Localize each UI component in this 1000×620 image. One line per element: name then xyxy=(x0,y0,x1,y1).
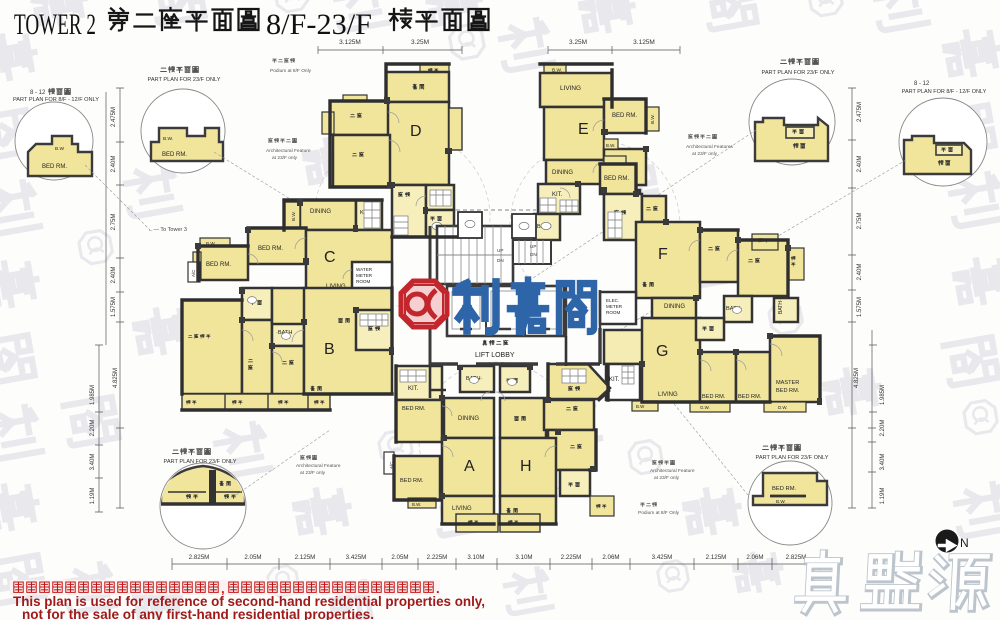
svg-text:1.19M: 1.19M xyxy=(90,488,96,505)
svg-text:ROOM: ROOM xyxy=(606,310,620,315)
svg-text:PART PLAN FOR 23/F ONLY: PART PLAN FOR 23/F ONLY xyxy=(164,459,237,465)
svg-text:at 23/F only: at 23/F only xyxy=(654,475,680,481)
svg-text:ROOM: ROOM xyxy=(356,279,370,284)
svg-text:1.985M: 1.985M xyxy=(880,385,886,405)
svg-text:8 - 12: 8 - 12 xyxy=(914,81,930,87)
svg-text:METER: METER xyxy=(356,273,373,278)
svg-text:B.W.: B.W. xyxy=(163,136,173,142)
svg-text:1.575M: 1.575M xyxy=(111,297,117,317)
svg-text:3.25M: 3.25M xyxy=(569,39,587,46)
svg-text:A: A xyxy=(464,458,475,475)
svg-text:B.W.: B.W. xyxy=(291,211,296,221)
svg-text:2.225M: 2.225M xyxy=(561,554,582,561)
svg-text:Podium at 8/F Only: Podium at 8/F Only xyxy=(270,68,312,74)
svg-text:B.W.: B.W. xyxy=(606,143,615,148)
svg-text:←— To Tower 3: ←— To Tower 3 xyxy=(148,227,187,233)
svg-text:2.75M: 2.75M xyxy=(111,214,117,231)
svg-text:G: G xyxy=(656,343,668,360)
svg-text:2.475M: 2.475M xyxy=(111,107,117,127)
svg-text:BATH·: BATH· xyxy=(778,299,784,314)
svg-text:C: C xyxy=(324,249,336,266)
svg-text:3.40M: 3.40M xyxy=(880,454,886,471)
svg-text:BED RM.: BED RM. xyxy=(604,176,629,182)
svg-text:3.10M: 3.10M xyxy=(515,554,532,561)
svg-text:2.06M: 2.06M xyxy=(602,554,619,561)
svg-text:D.W.: D.W. xyxy=(778,405,788,410)
svg-text:LIVING: LIVING xyxy=(452,506,472,512)
svg-text:H: H xyxy=(520,458,532,475)
svg-text:2.40M: 2.40M xyxy=(857,264,863,281)
svg-text:N: N xyxy=(960,536,969,550)
svg-text:D: D xyxy=(410,123,422,140)
svg-text:2.75M: 2.75M xyxy=(857,213,863,230)
svg-text:WATER: WATER xyxy=(356,267,373,272)
svg-text:DINING: DINING xyxy=(310,209,331,215)
svg-text:1.575M: 1.575M xyxy=(857,297,863,317)
svg-text:3.25M: 3.25M xyxy=(411,39,429,46)
svg-text:B.W.: B.W. xyxy=(776,499,786,504)
svg-text:Architectural Feature: Architectural Feature xyxy=(266,148,311,154)
svg-text:8 - 12: 8 - 12 xyxy=(30,90,46,96)
svg-text:DN: DN xyxy=(497,258,504,263)
svg-text:PART PLAN FOR 23/F ONLY: PART PLAN FOR 23/F ONLY xyxy=(762,70,835,76)
svg-text:at 23/F only: at 23/F only xyxy=(300,470,326,476)
svg-text:DINING: DINING xyxy=(664,304,685,310)
svg-text:DINING: DINING xyxy=(552,170,573,176)
svg-text:BED RM.: BED RM. xyxy=(738,394,762,400)
svg-text:DN: DN xyxy=(530,252,537,257)
svg-text:A/C: A/C xyxy=(191,270,196,277)
svg-text:DINING: DINING xyxy=(458,416,479,422)
svg-text:3.40M: 3.40M xyxy=(90,454,96,471)
svg-text:4.825M: 4.825M xyxy=(113,368,119,388)
svg-text:2.825M: 2.825M xyxy=(189,554,210,561)
svg-text:Architectural Feature: Architectural Feature xyxy=(650,468,695,474)
svg-text:B.W: B.W xyxy=(636,404,645,409)
svg-text:1.19M: 1.19M xyxy=(880,488,886,505)
svg-text:B: B xyxy=(324,341,335,358)
svg-text:F: F xyxy=(658,246,668,263)
svg-text:PART PLAN FOR 23/F ONLY: PART PLAN FOR 23/F ONLY xyxy=(148,77,221,83)
svg-text:2.125M: 2.125M xyxy=(706,554,727,561)
svg-text:2.225M: 2.225M xyxy=(427,554,448,561)
svg-text:METER: METER xyxy=(606,304,623,309)
svg-text:at 23/F only: at 23/F only xyxy=(692,151,718,157)
svg-text:not for the sale of any first-: not for the sale of any first-hand resid… xyxy=(22,606,374,620)
svg-text:BED RM.: BED RM. xyxy=(162,152,187,158)
svg-text:B.W: B.W xyxy=(55,146,65,152)
svg-text:B.W.: B.W. xyxy=(552,68,562,74)
svg-text:3.125M: 3.125M xyxy=(633,39,655,46)
svg-text:Podium at 8/F Only: Podium at 8/F Only xyxy=(638,510,680,516)
svg-text:LIVING: LIVING xyxy=(658,392,678,398)
svg-text:3.425M: 3.425M xyxy=(652,554,673,561)
svg-text:2.40M: 2.40M xyxy=(111,156,117,173)
svg-text:2.40M: 2.40M xyxy=(857,156,863,173)
svg-text:PART PLAN FOR 23/F ONLY: PART PLAN FOR 23/F ONLY xyxy=(756,455,829,461)
svg-text:Architectural Feature: Architectural Feature xyxy=(296,463,341,469)
svg-text:BED RM.: BED RM. xyxy=(400,478,424,484)
svg-text:3.10M: 3.10M xyxy=(467,554,484,561)
svg-text:LIFT LOBBY: LIFT LOBBY xyxy=(475,352,515,359)
svg-text:ELEC.: ELEC. xyxy=(606,298,619,303)
svg-text:2.40M: 2.40M xyxy=(111,267,117,284)
svg-text:2.06M: 2.06M xyxy=(746,554,763,561)
svg-text:KIT.: KIT. xyxy=(408,386,419,392)
svg-text:B.W.: B.W. xyxy=(412,502,421,507)
svg-text:4.825M: 4.825M xyxy=(854,368,860,388)
svg-text:2.475M: 2.475M xyxy=(857,102,863,122)
svg-text:G.W.: G.W. xyxy=(700,405,710,410)
svg-text:UP: UP xyxy=(497,248,503,253)
svg-text:BED RM.: BED RM. xyxy=(772,486,797,492)
svg-text:KIT.: KIT. xyxy=(609,377,620,383)
svg-text:BED RM.: BED RM. xyxy=(702,394,726,400)
svg-text:LIVING: LIVING xyxy=(560,85,581,92)
svg-text:8/F-23/F: 8/F-23/F xyxy=(266,8,372,41)
svg-text:3.425M: 3.425M xyxy=(346,554,367,561)
svg-text:PART PLAN FOR 8/F - 12/F ONLY: PART PLAN FOR 8/F - 12/F ONLY xyxy=(902,89,987,95)
svg-text:BED RM.: BED RM. xyxy=(258,246,283,252)
svg-text:B.W.: B.W. xyxy=(650,114,655,124)
svg-text:Architectural Features: Architectural Features xyxy=(686,144,734,150)
svg-text:MASTER: MASTER xyxy=(776,380,799,386)
svg-text:2.825M: 2.825M xyxy=(786,554,807,561)
svg-text:3.125M: 3.125M xyxy=(339,39,361,46)
svg-text:BED RM.: BED RM. xyxy=(612,113,637,119)
svg-text:2.20M: 2.20M xyxy=(880,420,886,437)
svg-text:2.20M: 2.20M xyxy=(90,420,96,437)
svg-text:1.985M: 1.985M xyxy=(90,385,96,405)
svg-text:PART PLAN FOR 8/F - 12/F ONLY: PART PLAN FOR 8/F - 12/F ONLY xyxy=(13,97,99,103)
svg-text:TOWER 2: TOWER 2 xyxy=(14,8,96,41)
svg-text:2.05M: 2.05M xyxy=(391,554,408,561)
svg-text:BED RM.: BED RM. xyxy=(402,406,426,412)
svg-text:UP: UP xyxy=(530,244,536,249)
svg-text:BED RM.: BED RM. xyxy=(206,262,231,268)
svg-text:E: E xyxy=(578,121,589,138)
svg-text:2.125M: 2.125M xyxy=(295,554,316,561)
svg-text:2.05M: 2.05M xyxy=(244,554,261,561)
svg-text:KIT.: KIT. xyxy=(552,192,563,198)
svg-text:BED RM.: BED RM. xyxy=(776,388,800,394)
svg-text:BED RM.: BED RM. xyxy=(42,164,67,170)
svg-text:at 23/F only: at 23/F only xyxy=(272,155,298,161)
